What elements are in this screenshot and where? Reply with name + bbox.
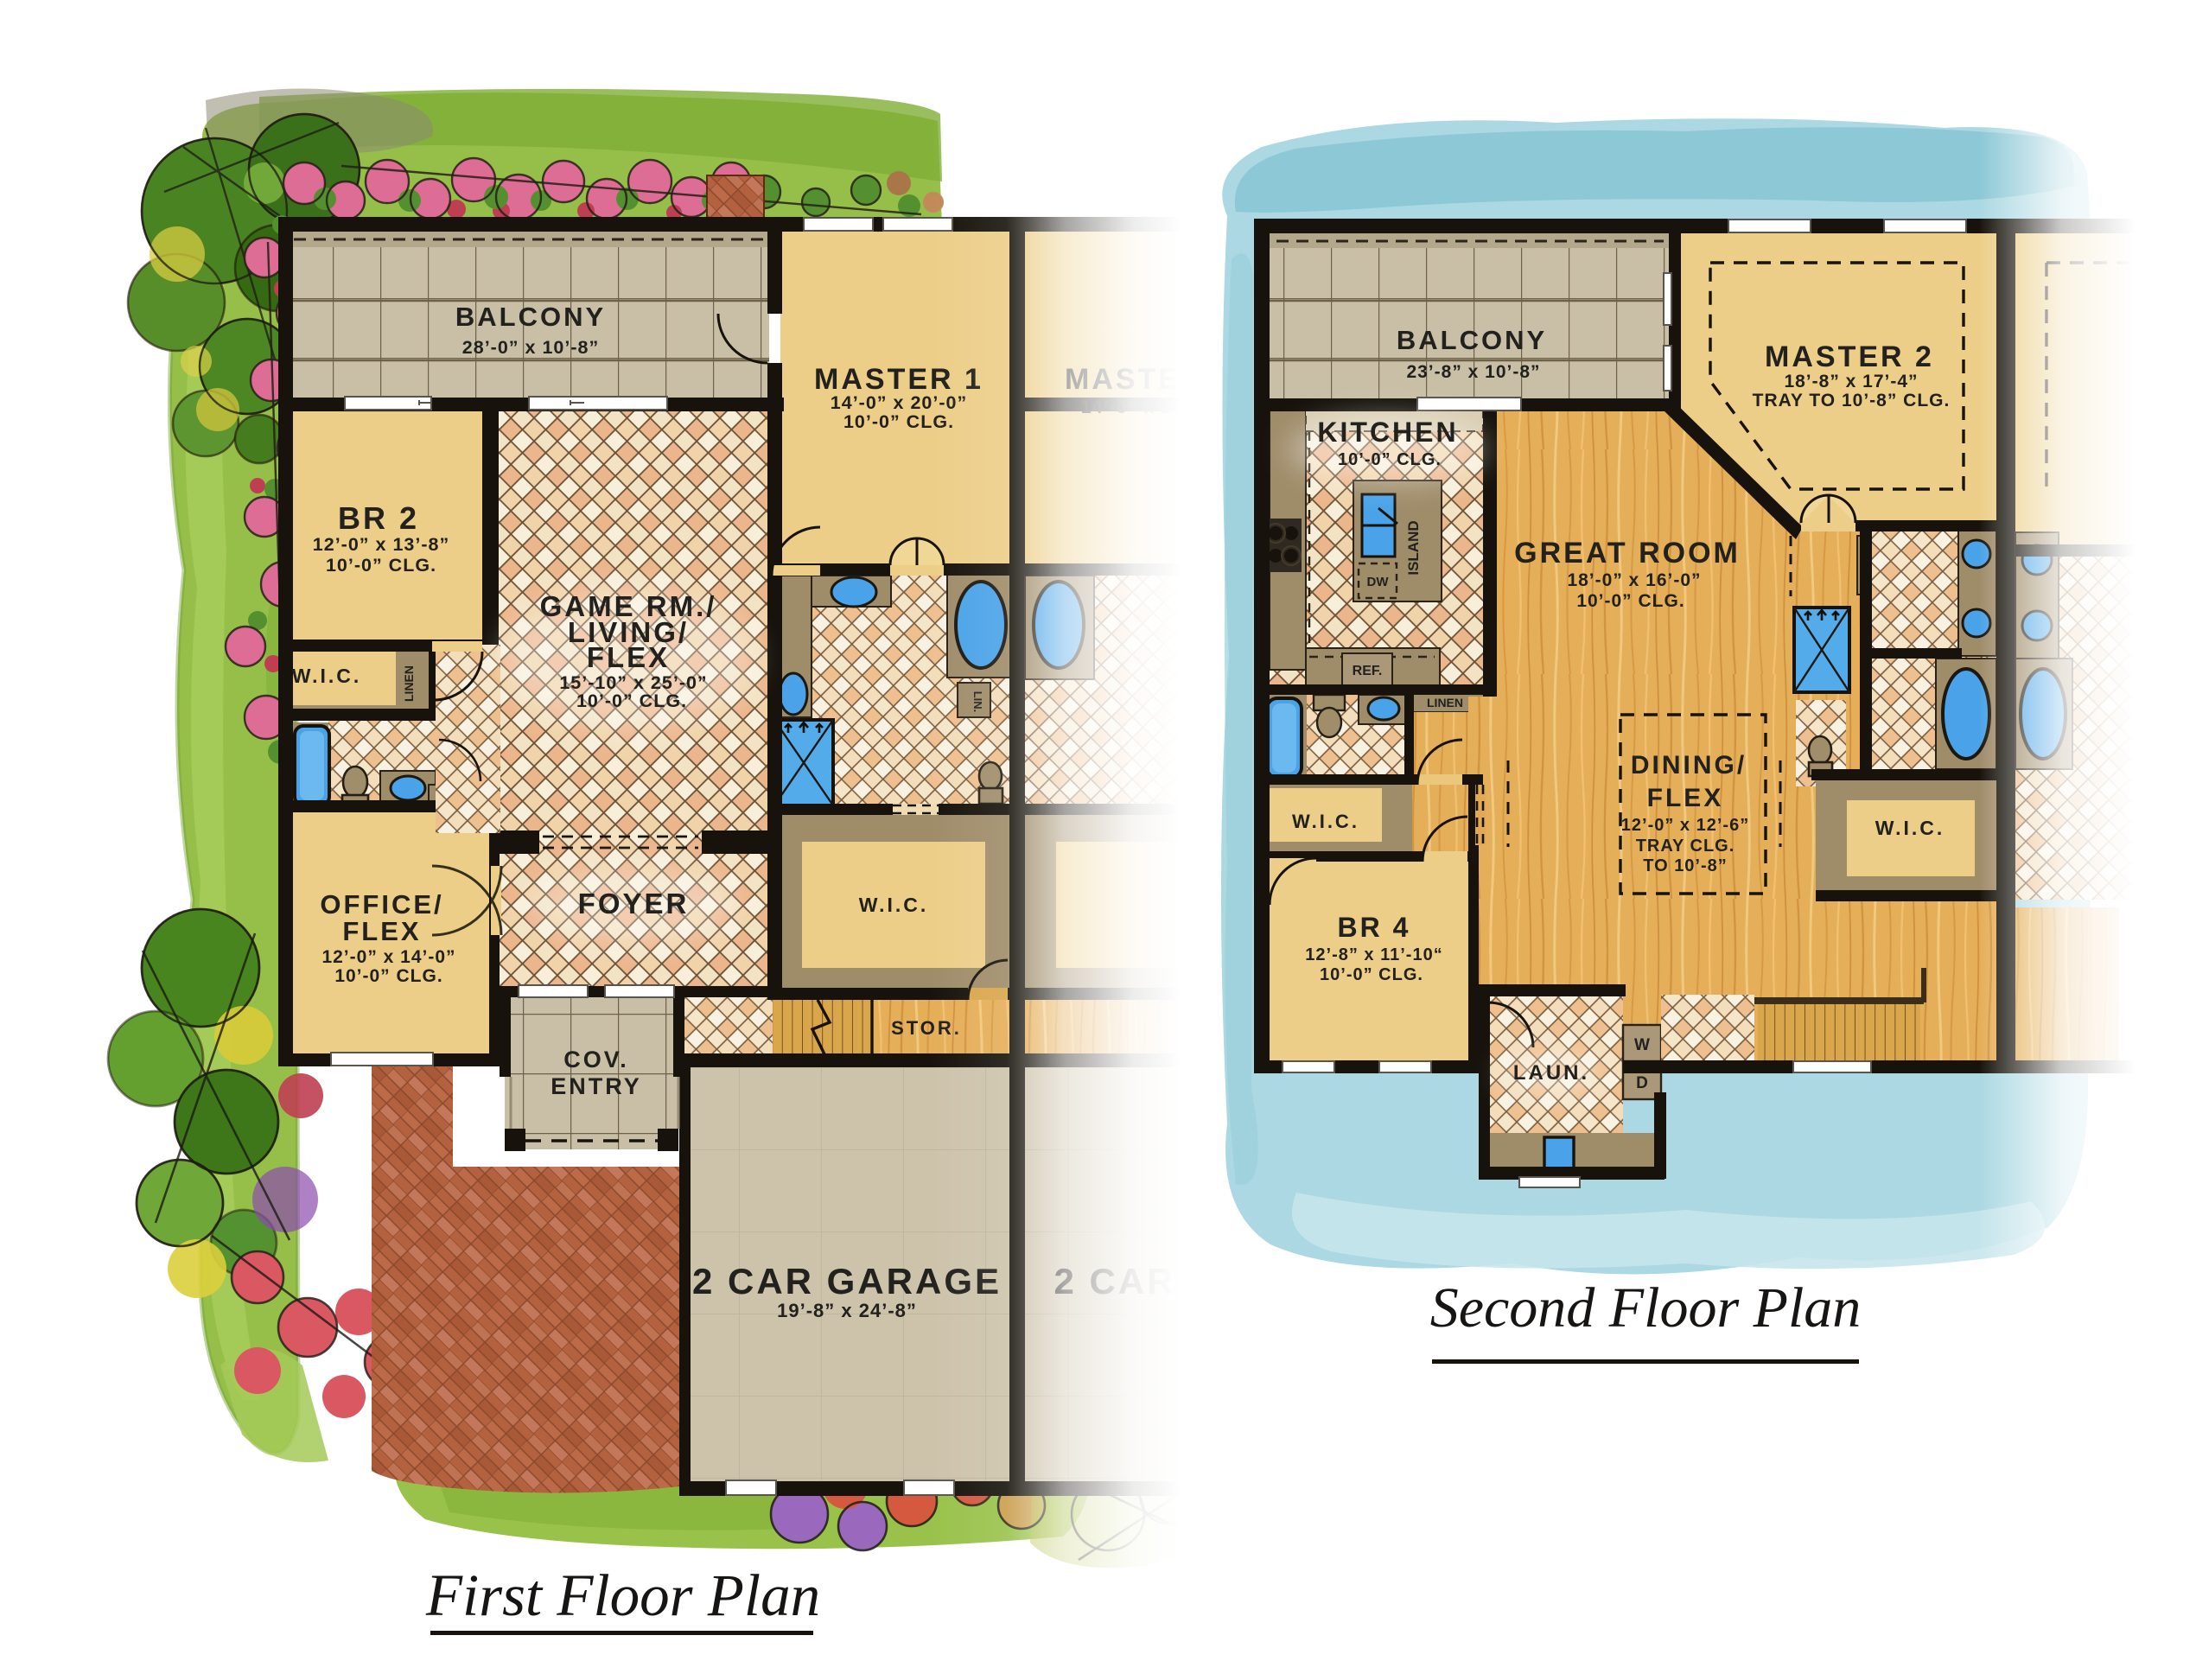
svg-text:D: D [1636, 1074, 1648, 1092]
svg-text:LINEN: LINEN [1427, 696, 1463, 710]
svg-text:10’-0” CLG.: 10’-0” CLG. [1338, 450, 1442, 469]
svg-text:GREAT ROOM: GREAT ROOM [1514, 537, 1741, 570]
svg-text:TO 10’-8”: TO 10’-8” [1643, 856, 1728, 875]
svg-text:10’-0” CLG.: 10’-0” CLG. [326, 555, 436, 576]
svg-text:12’-0” x 14’-0”: 12’-0” x 14’-0” [321, 947, 455, 967]
svg-text:12’-0” x 13’-8”: 12’-0” x 13’-8” [313, 534, 449, 555]
svg-text:10’-0” CLG.: 10’-0” CLG. [576, 690, 687, 711]
svg-text:COV.: COV. [563, 1047, 629, 1072]
svg-text:12’-0” x 12’-6”: 12’-0” x 12’-6” [1621, 816, 1749, 835]
svg-text:23’-8” x 10’-8”: 23’-8” x 10’-8” [1406, 362, 1540, 382]
svg-text:ISLAND: ISLAND [1405, 520, 1422, 575]
svg-text:12’-8” x 11’-10“: 12’-8” x 11’-10“ [1305, 945, 1442, 964]
svg-text:10’-0” CLG.: 10’-0” CLG. [1576, 591, 1684, 611]
svg-text:LINEN: LINEN [402, 665, 416, 702]
svg-text:W.I.C.: W.I.C. [292, 665, 362, 687]
svg-text:OFFICE/: OFFICE/ [320, 889, 443, 920]
svg-text:Second Floor Plan: Second Floor Plan [1430, 1276, 1862, 1340]
svg-text:LAUN.: LAUN. [1513, 1061, 1589, 1085]
svg-text:FLEX: FLEX [1647, 784, 1724, 812]
svg-text:First Floor Plan: First Floor Plan [425, 1562, 820, 1628]
svg-text:28’-0” x 10’-8”: 28’-0” x 10’-8” [462, 337, 599, 358]
svg-text:18’-0” x 16’-0”: 18’-0” x 16’-0” [1567, 570, 1701, 590]
svg-text:19’-8” x 24’-8”: 19’-8” x 24’-8” [777, 1300, 917, 1321]
svg-text:BALCONY: BALCONY [1397, 325, 1547, 355]
svg-text:TRAY CLG.: TRAY CLG. [1636, 837, 1735, 856]
svg-text:FLEX: FLEX [587, 641, 670, 673]
svg-text:10’-0” CLG.: 10’-0” CLG. [334, 966, 442, 986]
svg-text:REF.: REF. [1353, 664, 1383, 678]
svg-text:TRAY TO 10’-8” CLG.: TRAY TO 10’-8” CLG. [1753, 391, 1951, 410]
svg-text:KITCHEN: KITCHEN [1317, 417, 1458, 448]
svg-text:DW: DW [1367, 575, 1390, 589]
svg-text:MASTER 2: MASTER 2 [1765, 340, 1934, 373]
svg-text:BR 2: BR 2 [338, 500, 419, 536]
svg-text:FOYER: FOYER [578, 888, 690, 920]
svg-text:W: W [1634, 1036, 1650, 1054]
svg-text:BALCONY: BALCONY [455, 302, 606, 332]
svg-text:18’-8” x 17’-4”: 18’-8” x 17’-4” [1784, 372, 1918, 391]
svg-text:ENTRY: ENTRY [551, 1073, 642, 1099]
svg-text:W.I.C.: W.I.C. [1292, 811, 1359, 832]
svg-text:FLEX: FLEX [342, 916, 421, 946]
svg-text:BR 4: BR 4 [1338, 912, 1411, 943]
svg-text:DINING/: DINING/ [1631, 751, 1747, 780]
svg-text:10’-0” CLG.: 10’-0” CLG. [1320, 965, 1423, 984]
svg-text:W.I.C.: W.I.C. [859, 894, 929, 916]
svg-text:W.I.C.: W.I.C. [1875, 817, 1945, 839]
